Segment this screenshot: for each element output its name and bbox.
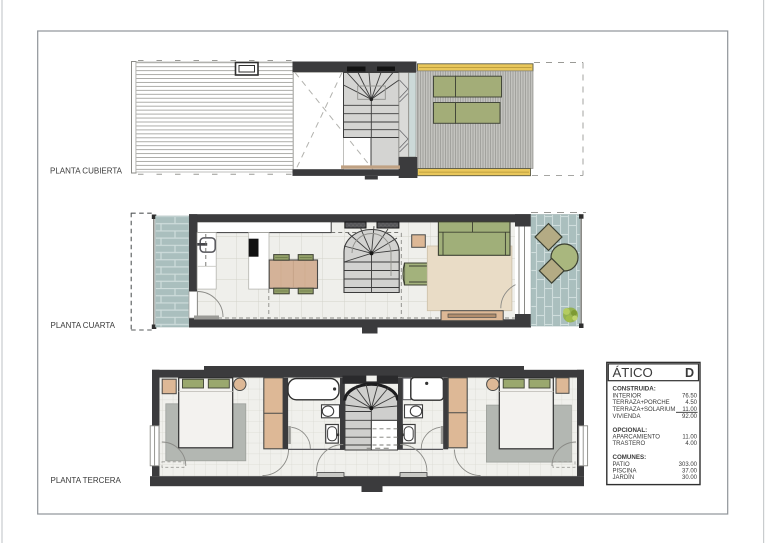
svg-text:37.00: 37.00 (682, 469, 698, 475)
svg-text:INTERIOR: INTERIOR (613, 394, 642, 400)
svg-text:PATIO: PATIO (613, 462, 630, 468)
svg-text:ÁTICO: ÁTICO (613, 365, 653, 380)
svg-text:PLANTA CUBIERTA: PLANTA CUBIERTA (50, 166, 123, 175)
svg-text:APARCAMIENTO: APARCAMIENTO (613, 435, 661, 441)
svg-text:PLANTA TERCERA: PLANTA TERCERA (51, 476, 122, 485)
svg-text:30.00: 30.00 (682, 475, 698, 481)
svg-text:PISCINA: PISCINA (613, 469, 637, 475)
svg-text:VIVIENDA: VIVIENDA (613, 414, 641, 420)
svg-text:OPCIONAL:: OPCIONAL: (613, 427, 648, 434)
svg-text:COMUNES:: COMUNES: (613, 454, 647, 461)
svg-text:TERRAZA+PORCHE: TERRAZA+PORCHE (613, 400, 670, 406)
svg-text:JARDÍN: JARDÍN (613, 474, 635, 481)
svg-text:CONSTRUIDA:: CONSTRUIDA: (613, 386, 656, 393)
svg-text:PLANTA CUARTA: PLANTA CUARTA (51, 321, 116, 330)
svg-text:11.00: 11.00 (682, 435, 697, 441)
svg-text:76.50: 76.50 (682, 394, 698, 400)
svg-text:TERRAZA+SOLARIUM: TERRAZA+SOLARIUM (613, 407, 676, 413)
svg-text:D: D (685, 366, 694, 380)
svg-text:303.00: 303.00 (679, 462, 698, 468)
svg-text:4.50: 4.50 (685, 400, 697, 406)
svg-text:TRASTERO: TRASTERO (613, 441, 646, 447)
svg-text:92.00: 92.00 (682, 414, 698, 420)
svg-text:4.00: 4.00 (685, 441, 697, 447)
